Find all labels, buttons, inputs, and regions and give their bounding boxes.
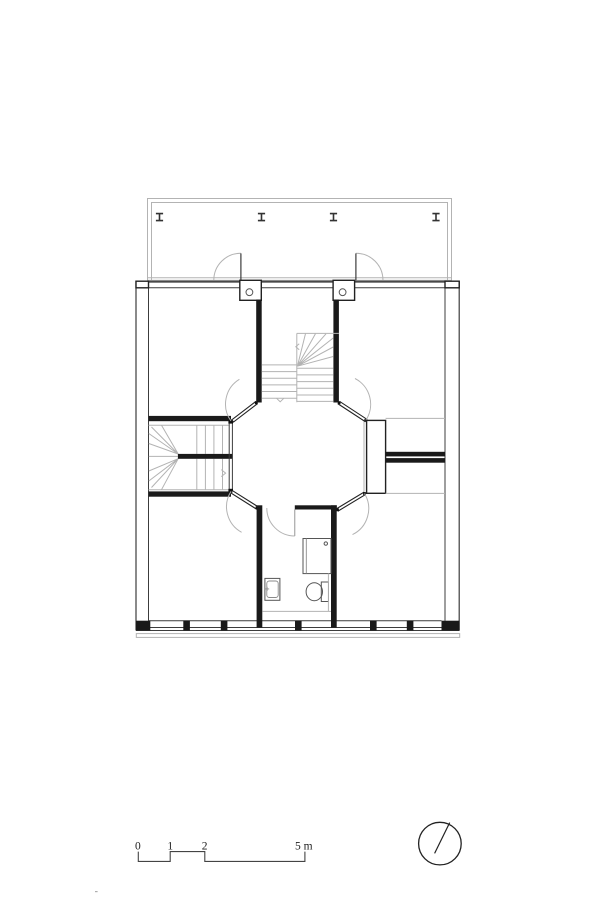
door-arc-top-left <box>226 379 240 421</box>
scale-bar: 0 1 2 5 m <box>135 840 313 861</box>
right-balcony-door-arc <box>356 253 383 280</box>
balcony <box>148 199 452 281</box>
door-leaf-caps <box>230 401 368 511</box>
central-stair-treads <box>262 333 339 402</box>
bathroom-door-arc <box>267 508 295 536</box>
bathroom <box>257 505 337 627</box>
central-stair <box>256 300 339 403</box>
right-column-block <box>333 280 355 300</box>
central-stair-winder-fan <box>297 334 333 367</box>
left-column-block <box>240 280 261 300</box>
central-stair-right-wall <box>333 300 339 403</box>
scale-label-5m: 5 m <box>295 840 313 852</box>
north-needle <box>435 823 450 854</box>
door-leaf-bottom-left <box>230 490 257 509</box>
top-right-corner-pier <box>445 281 459 288</box>
page-stray-dot <box>95 891 98 892</box>
shower <box>303 539 331 574</box>
closet-divider-wall-upper <box>386 452 446 457</box>
scale-bar-profile <box>138 852 305 862</box>
bottom-left-corner-pier <box>136 621 150 631</box>
door-leaf-top-right <box>338 402 366 422</box>
washbasin-tap <box>265 587 269 591</box>
balcony-inner-edge <box>152 203 448 281</box>
winder-fan <box>149 425 178 489</box>
north-circle-icon <box>419 822 462 865</box>
top-left-corner-pier <box>136 281 149 288</box>
toilet <box>306 582 328 602</box>
top-window-band <box>149 282 446 288</box>
left-winder-stair <box>149 416 233 497</box>
bottom-right-corner-pier <box>442 621 460 631</box>
bathroom-left-wall <box>257 505 263 627</box>
closet-band <box>367 420 386 493</box>
balcony-outer-edge <box>148 199 452 281</box>
washbasin <box>265 578 280 600</box>
floor-plan-page: 0 1 2 5 m <box>0 0 600 897</box>
balcony-doors <box>214 253 383 300</box>
central-stair-left-wall <box>256 300 262 403</box>
bathroom-top-wall <box>295 505 337 509</box>
stair-direction-chevron-down <box>277 398 284 402</box>
bottom-window-band <box>136 621 459 631</box>
floor-plan-canvas: 0 1 2 5 m <box>0 0 600 897</box>
stairwell-bottom-wall <box>149 491 231 496</box>
steel-column-i-beam-icons <box>156 214 440 221</box>
right-closet-niches <box>364 418 445 493</box>
closet-divider-wall-lower <box>386 458 446 463</box>
shower-drain <box>324 542 327 545</box>
door-leaf-top-left <box>232 402 257 422</box>
stair-handrail-bar <box>178 454 233 459</box>
door-leaf-bottom-right <box>337 492 365 511</box>
stairwell-top-wall <box>149 416 231 421</box>
scale-label-1: 1 <box>167 840 173 852</box>
octagonal-hall <box>226 379 371 535</box>
left-balcony-door-arc <box>214 253 241 280</box>
stair-direction-chevron-right <box>221 470 225 477</box>
scale-label-2: 2 <box>202 840 208 852</box>
scale-label-0: 0 <box>135 840 141 852</box>
terrace-edge-line <box>136 634 459 638</box>
window-mullions <box>183 621 413 631</box>
bathroom-right-wall <box>331 505 337 627</box>
